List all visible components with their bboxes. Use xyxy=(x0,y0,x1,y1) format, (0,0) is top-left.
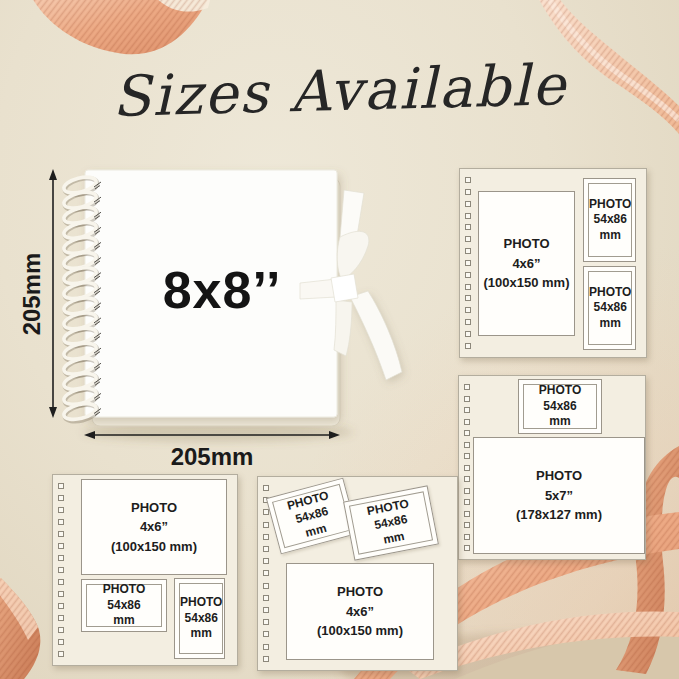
punch-hole xyxy=(58,519,64,525)
punch-hole xyxy=(464,419,470,425)
punch-hole xyxy=(58,591,64,597)
photo-slot-54x86-tilted: PHOTO 54x86 mm xyxy=(266,478,358,555)
slot-label: PHOTO xyxy=(539,383,581,399)
punch-hole xyxy=(263,607,269,613)
photo-slot-54x86: PHOTO 54x86 mm xyxy=(174,578,225,659)
slot-label: PHOTO xyxy=(536,466,582,486)
punch-hole xyxy=(465,224,471,230)
punch-hole xyxy=(263,631,269,637)
punch-hole xyxy=(465,213,471,219)
slot-label: mm xyxy=(191,626,212,642)
punch-hole xyxy=(58,507,64,513)
punch-hole xyxy=(58,651,64,657)
punch-hole xyxy=(465,319,471,325)
binder-holes xyxy=(58,483,65,657)
punch-hole xyxy=(464,465,470,471)
album-width-label: 205mm xyxy=(171,443,254,470)
punch-hole xyxy=(464,545,470,551)
slot-label: PHOTO xyxy=(337,582,383,602)
punch-hole xyxy=(464,511,470,517)
album-illustration: 8x8’’ 205mm 205mm xyxy=(0,150,430,480)
photo-slot-54x86-tilted: PHOTO 54x86 mm xyxy=(343,485,439,560)
punch-hole xyxy=(465,295,471,301)
product-infographic: Sizes Available 8x8’’ xyxy=(0,0,679,679)
photo-slot-54x86: PHOTO 54x86 mm xyxy=(518,379,602,434)
punch-hole xyxy=(464,522,470,528)
punch-hole xyxy=(58,579,64,585)
dimension-arrow-vertical xyxy=(49,169,57,418)
slot-label: 5x7” xyxy=(545,486,573,506)
photo-slot-4x6: PHOTO 4x6” (100x150 mm) xyxy=(81,479,227,575)
slot-label: (100x150 mm) xyxy=(317,621,403,641)
punch-hole xyxy=(464,534,470,540)
punch-hole xyxy=(263,595,269,601)
photo-slot-4x6: PHOTO 4x6” (100x150 mm) xyxy=(478,191,575,336)
punch-hole xyxy=(58,567,64,573)
punch-hole xyxy=(465,177,471,183)
punch-hole xyxy=(58,543,64,549)
punch-hole xyxy=(464,442,470,448)
punch-hole xyxy=(464,407,470,413)
punch-hole xyxy=(58,483,64,489)
slot-label: 54x86 xyxy=(185,611,218,627)
slot-label: mm xyxy=(600,316,621,332)
slot-label: 4x6” xyxy=(512,254,540,274)
slot-label: PHOTO xyxy=(103,582,145,598)
punch-hole xyxy=(58,603,64,609)
punch-hole xyxy=(58,639,64,645)
slot-label: (178x127 mm) xyxy=(516,505,602,525)
slot-label: (100x150 mm) xyxy=(484,273,570,293)
punch-hole xyxy=(58,531,64,537)
punch-hole xyxy=(465,331,471,337)
punch-hole xyxy=(263,656,269,662)
punch-hole xyxy=(465,307,471,313)
slot-label: mm xyxy=(382,529,406,548)
slot-label: PHOTO xyxy=(131,498,177,518)
punch-hole xyxy=(263,522,269,528)
punch-hole xyxy=(263,558,269,564)
photo-slot-54x86: PHOTO 54x86 mm xyxy=(583,266,636,350)
punch-hole xyxy=(263,546,269,552)
punch-hole xyxy=(465,284,471,290)
binder-holes xyxy=(464,384,471,551)
punch-hole xyxy=(464,488,470,494)
punch-hole xyxy=(464,430,470,436)
punch-hole xyxy=(465,248,471,254)
slot-label: mm xyxy=(113,613,134,629)
slot-label: PHOTO xyxy=(589,197,631,213)
slot-label: mm xyxy=(549,414,570,430)
punch-hole xyxy=(58,627,64,633)
page-title: Sizes Available xyxy=(0,49,679,132)
slot-label: (100x150 mm) xyxy=(111,537,197,557)
photo-slot-4x6: PHOTO 4x6” (100x150 mm) xyxy=(286,563,434,660)
photo-slot-54x86: PHOTO 54x86 mm xyxy=(81,579,167,632)
album-size-label: 8x8’’ xyxy=(163,261,282,319)
slot-label: 4x6” xyxy=(140,517,168,537)
slot-label: 54x86 xyxy=(107,598,140,614)
punch-hole xyxy=(465,189,471,195)
punch-hole xyxy=(263,534,269,540)
punch-hole xyxy=(465,236,471,242)
punch-hole xyxy=(464,453,470,459)
punch-hole xyxy=(263,644,269,650)
ribbon-bottom-left xyxy=(0,566,40,679)
punch-hole xyxy=(465,272,471,278)
photo-slot-5x7: PHOTO 5x7” (178x127 mm) xyxy=(473,437,645,554)
punch-hole xyxy=(263,485,269,491)
slot-label: PHOTO xyxy=(589,285,631,301)
punch-hole xyxy=(464,384,470,390)
punch-hole xyxy=(58,495,64,501)
slot-label: 54x86 xyxy=(594,300,627,316)
punch-hole xyxy=(464,476,470,482)
punch-hole xyxy=(263,619,269,625)
ribbon-top-left xyxy=(26,0,214,54)
layout-page-1: PHOTO 4x6” (100x150 mm) PHOTO 54x86 mm P… xyxy=(459,168,647,358)
punch-hole xyxy=(465,260,471,266)
slot-label: 54x86 xyxy=(543,399,576,415)
binder-holes xyxy=(465,177,472,349)
layout-page-3: PHOTO 4x6” (100x150 mm) PHOTO 54x86 mm P… xyxy=(52,474,238,666)
punch-hole xyxy=(465,201,471,207)
slot-label: mm xyxy=(600,228,621,244)
slot-label: PHOTO xyxy=(504,234,550,254)
slot-label: 54x86 xyxy=(594,212,627,228)
photo-slot-54x86: PHOTO 54x86 mm xyxy=(583,178,636,262)
slot-label: PHOTO xyxy=(180,595,222,611)
slot-label: 4x6” xyxy=(346,602,374,622)
punch-hole xyxy=(464,499,470,505)
punch-hole xyxy=(58,615,64,621)
punch-hole xyxy=(465,343,471,349)
layout-page-4: PHOTO 54x86 mm PHOTO 54x86 mm PHOTO 4x6”… xyxy=(257,476,458,671)
punch-hole xyxy=(263,570,269,576)
album-height-label: 205mm xyxy=(18,253,45,336)
layout-page-2: PHOTO 54x86 mm PHOTO 5x7” (178x127 mm) xyxy=(458,375,646,560)
punch-hole xyxy=(58,555,64,561)
punch-hole xyxy=(464,396,470,402)
punch-hole xyxy=(263,583,269,589)
